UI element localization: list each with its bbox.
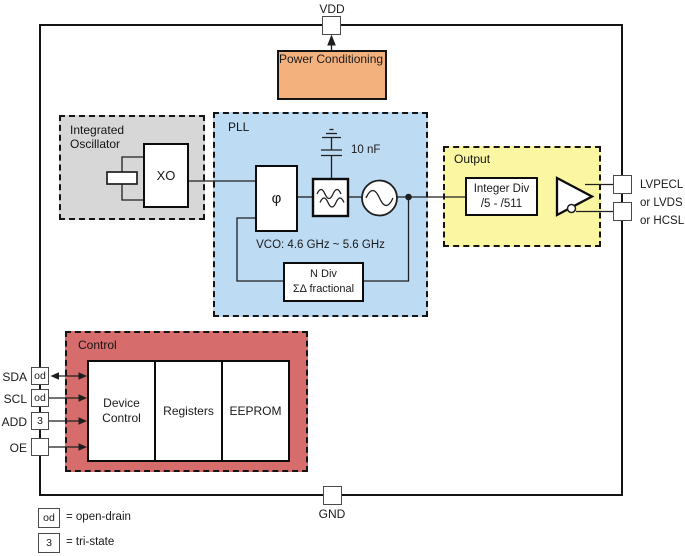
output-pin-positive bbox=[613, 175, 632, 194]
output-block-title: Output bbox=[454, 152, 490, 166]
n-divider-line2: ΣΔ fractional bbox=[293, 282, 354, 297]
power-conditioning-box: Power Conditioning bbox=[277, 50, 387, 100]
oe-pin bbox=[31, 438, 49, 456]
add-label: ADD bbox=[0, 415, 27, 429]
xo-box: XO bbox=[143, 143, 189, 208]
control-inner-box: Device Control Registers EEPROM bbox=[87, 360, 290, 462]
vdd-pin bbox=[322, 16, 341, 35]
integer-divider-box: Integer Div /5 - /511 bbox=[465, 177, 538, 216]
add-pin: 3 bbox=[31, 412, 49, 430]
oe-label: OE bbox=[0, 441, 27, 455]
integer-divider-line1: Integer Div bbox=[474, 182, 530, 197]
integer-divider-line2: /5 - /511 bbox=[481, 197, 522, 212]
eeprom-cell: EEPROM bbox=[221, 362, 288, 460]
block-diagram-canvas: Integrated Oscillator PLL Output Control bbox=[0, 0, 685, 556]
pll-block-title: PLL bbox=[228, 120, 249, 134]
sda-label: SDA bbox=[0, 370, 27, 384]
output-signal-types: LVPECL or LVDS or HCSL bbox=[640, 176, 685, 230]
vdd-label: VDD bbox=[311, 2, 353, 16]
scl-label: SCL bbox=[0, 392, 27, 406]
legend-open-drain-symbol: od bbox=[38, 508, 60, 528]
device-control-cell: Device Control bbox=[89, 362, 154, 460]
n-divider-box: N Div ΣΔ fractional bbox=[283, 262, 364, 302]
output-type-lvds: or LVDS bbox=[640, 194, 685, 212]
capacitor-value-label: 10 nF bbox=[351, 144, 380, 156]
output-type-hcsl: or HCSL bbox=[640, 212, 685, 230]
phase-detector-box: φ bbox=[255, 165, 298, 232]
gnd-label: GND bbox=[311, 507, 353, 521]
oscillator-block-title: Integrated Oscillator bbox=[70, 123, 154, 152]
legend-open-drain-text: = open-drain bbox=[66, 511, 131, 523]
control-block-title: Control bbox=[78, 338, 117, 352]
output-pin-negative bbox=[613, 202, 632, 221]
sda-pin: od bbox=[31, 367, 49, 385]
output-type-lvpecl: LVPECL bbox=[640, 176, 685, 194]
gnd-pin bbox=[323, 486, 342, 505]
legend-tristate-text: = tri-state bbox=[66, 536, 114, 548]
registers-cell: Registers bbox=[154, 362, 221, 460]
legend-tristate-symbol: 3 bbox=[38, 533, 60, 553]
n-divider-line1: N Div bbox=[310, 267, 337, 282]
vco-range-label: VCO: 4.6 GHz ~ 5.6 GHz bbox=[213, 239, 428, 251]
scl-pin: od bbox=[31, 389, 49, 407]
